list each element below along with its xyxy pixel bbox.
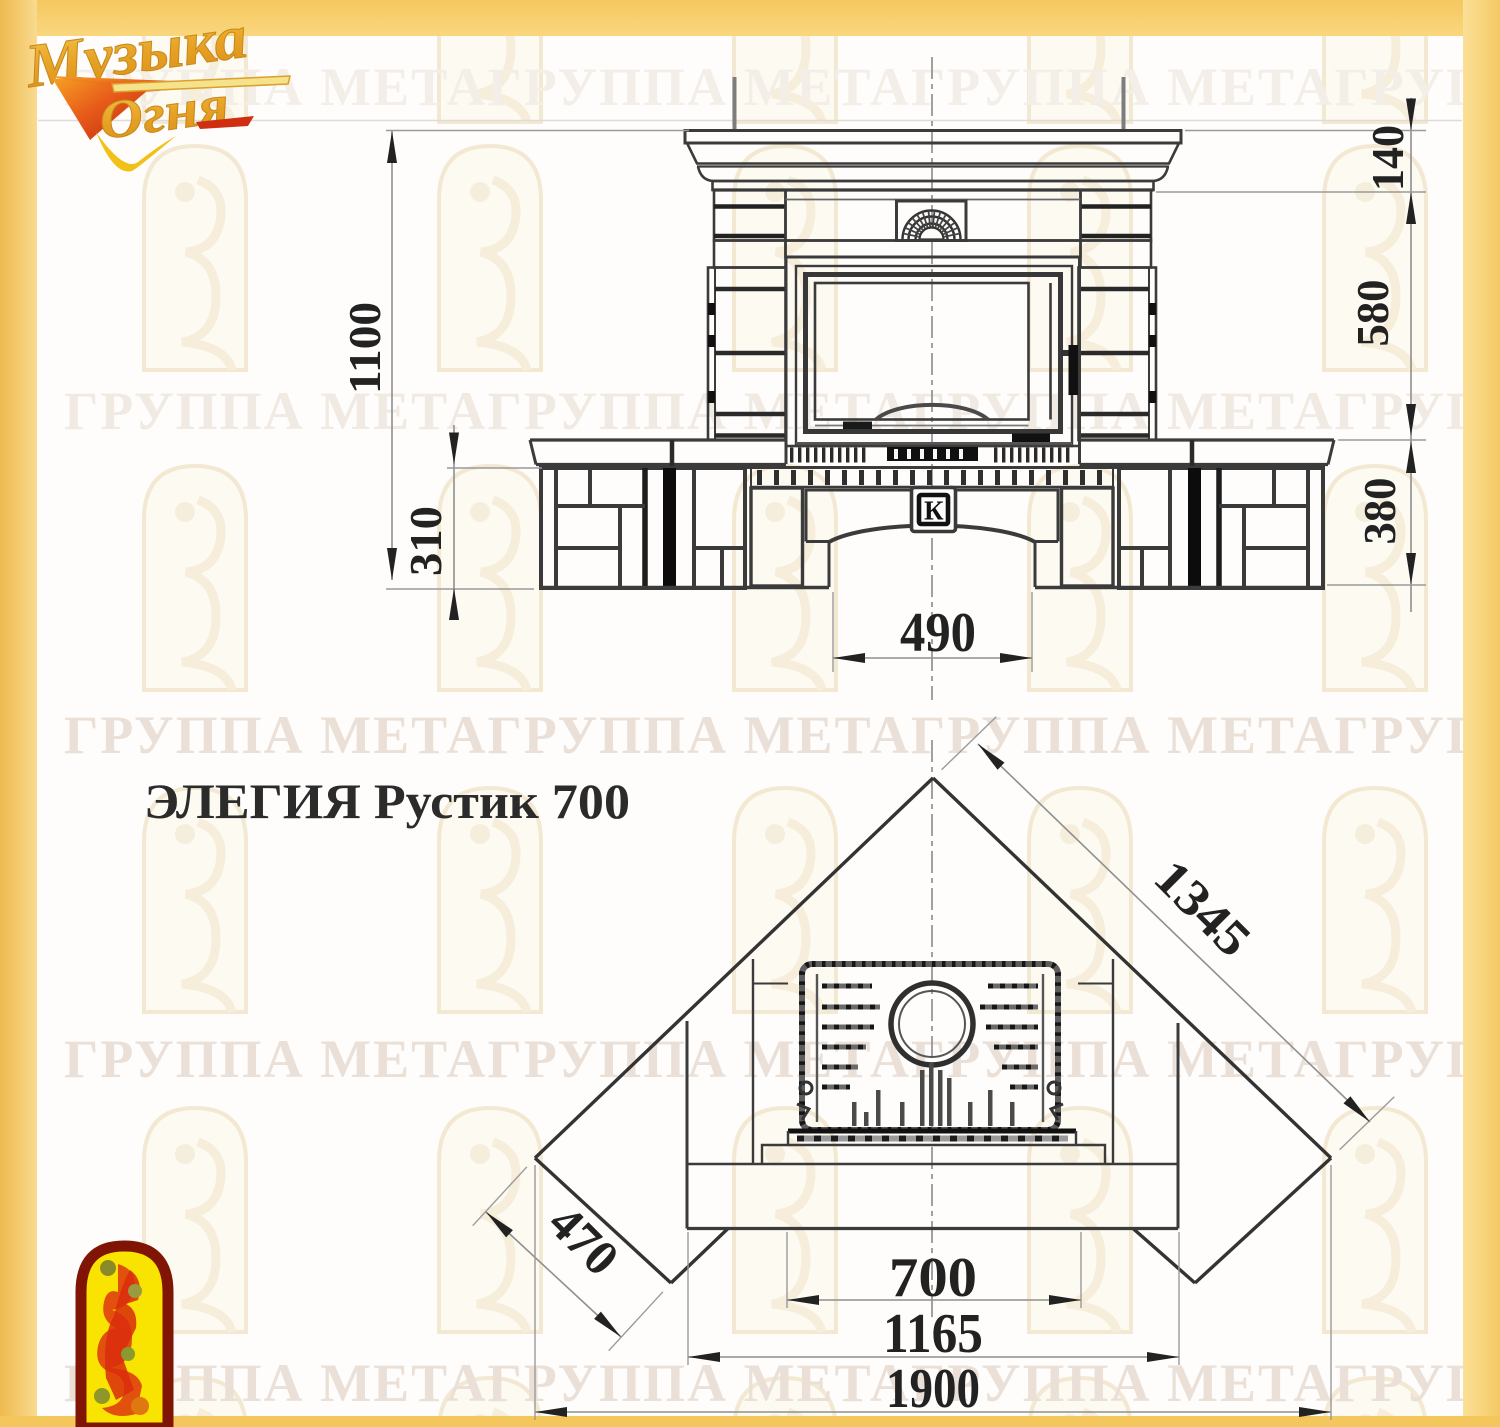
svg-text:ЭЛЕГИЯ Рустик 700: ЭЛЕГИЯ Рустик 700	[144, 773, 630, 829]
svg-text:1165: 1165	[883, 1303, 983, 1365]
svg-text:1900: 1900	[886, 1358, 980, 1420]
svg-text:700: 700	[889, 1247, 977, 1309]
svg-text:580: 580	[1347, 280, 1398, 347]
svg-text:310: 310	[400, 506, 451, 576]
svg-text:К: К	[924, 496, 944, 526]
svg-text:1345: 1345	[1144, 849, 1263, 968]
svg-text:490: 490	[900, 602, 976, 664]
svg-text:1100: 1100	[339, 302, 390, 394]
svg-text:380: 380	[1354, 478, 1405, 545]
svg-text:140: 140	[1362, 125, 1413, 191]
